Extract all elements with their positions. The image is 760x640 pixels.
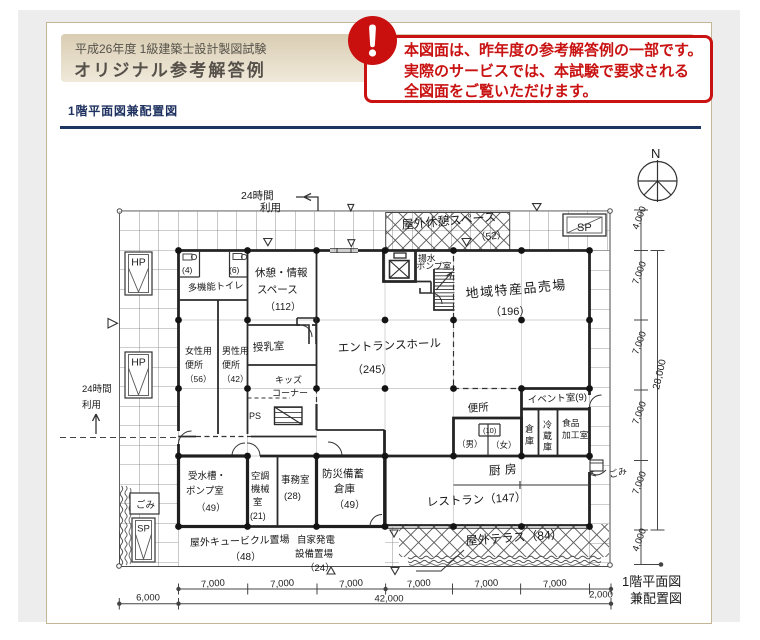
svg-text:庫: 庫 [525, 435, 534, 446]
svg-text:キッズ: キッズ [275, 374, 302, 385]
svg-text:（112）: （112） [265, 301, 301, 313]
svg-text:（女）: （女） [491, 440, 517, 450]
svg-text:空調: 空調 [251, 470, 270, 481]
svg-text:食品: 食品 [562, 417, 580, 428]
svg-text:(4): (4) [182, 265, 193, 275]
svg-text:7,000: 7,000 [630, 260, 648, 286]
svg-text:（42）: （42） [222, 374, 248, 384]
svg-text:2,000: 2,000 [589, 590, 613, 601]
svg-text:（56）: （56） [185, 374, 211, 384]
svg-text:6,000: 6,000 [136, 593, 160, 604]
svg-text:N: N [651, 146, 660, 161]
svg-text:ポンプ室: ポンプ室 [186, 485, 224, 497]
svg-text:休憩・情報: 休憩・情報 [255, 266, 308, 279]
svg-text:女性用: 女性用 [185, 345, 212, 356]
svg-text:厨房: 厨房 [488, 461, 521, 478]
svg-text:(6): (6) [229, 265, 240, 275]
svg-text:7,000: 7,000 [474, 578, 498, 591]
svg-text:（196）: （196） [490, 305, 530, 318]
svg-text:4,000: 4,000 [630, 527, 648, 553]
svg-text:便所: 便所 [185, 359, 203, 370]
svg-text:(21): (21) [250, 511, 266, 521]
svg-text:加工室: 加工室 [562, 429, 589, 440]
svg-text:7,000: 7,000 [630, 400, 648, 426]
svg-text:地域特産品売場: 地域特産品売場 [465, 277, 567, 301]
svg-text:7,000: 7,000 [630, 470, 648, 496]
svg-text:HP: HP [131, 257, 146, 269]
svg-text:授乳室: 授乳室 [252, 339, 284, 354]
svg-text:ごみ: ごみ [608, 465, 628, 480]
svg-text:倉: 倉 [525, 423, 534, 434]
svg-text:受水槽・: 受水槽・ [188, 470, 226, 482]
svg-text:室: 室 [253, 496, 262, 507]
svg-text:7,000: 7,000 [270, 578, 294, 591]
svg-text:（49）: （49） [196, 502, 226, 514]
svg-text:ポンプ室: ポンプ室 [417, 260, 452, 271]
svg-text:7,000: 7,000 [407, 578, 431, 591]
svg-text:SP: SP [137, 524, 150, 535]
svg-text:便所: 便所 [222, 359, 240, 370]
svg-text:エントランスホール: エントランスホール [337, 337, 441, 355]
svg-text:（男）: （男） [457, 439, 483, 449]
svg-text:倉庫: 倉庫 [334, 482, 355, 495]
svg-text:便所: 便所 [467, 401, 489, 415]
svg-text:防災備蓄: 防災備蓄 [322, 467, 364, 480]
svg-text:イベント室(9): イベント室(9) [528, 391, 588, 406]
svg-text:事務室: 事務室 [281, 474, 310, 486]
svg-text:（49）: （49） [334, 499, 365, 511]
svg-text:多機能トイレ: 多機能トイレ [188, 279, 244, 293]
svg-text:（24）: （24） [305, 562, 335, 574]
svg-text:7,000: 7,000 [630, 330, 648, 356]
svg-text:自家発電: 自家発電 [297, 534, 336, 546]
svg-text:庫: 庫 [543, 441, 552, 452]
svg-text:（245）: （245） [352, 363, 392, 376]
svg-text:24時間: 24時間 [82, 384, 112, 395]
svg-text:7,000: 7,000 [543, 578, 567, 591]
svg-text:(10): (10) [483, 426, 497, 435]
svg-text:28,000: 28,000 [651, 358, 669, 391]
svg-text:7,000: 7,000 [201, 578, 225, 591]
svg-text:機械: 機械 [251, 483, 270, 494]
svg-text:レストラン（147）: レストラン（147） [426, 491, 526, 509]
svg-text:冷: 冷 [543, 419, 552, 430]
svg-text:兼配置図: 兼配置図 [630, 591, 682, 606]
svg-text:利用: 利用 [82, 399, 101, 411]
svg-text:7,000: 7,000 [339, 578, 363, 591]
svg-text:設備置場: 設備置場 [295, 548, 334, 560]
svg-text:（48）: （48） [230, 551, 261, 563]
svg-text:PS: PS [249, 411, 261, 421]
svg-text:蔵: 蔵 [543, 430, 552, 441]
svg-text:HP: HP [131, 357, 146, 369]
svg-text:42,000: 42,000 [374, 594, 403, 605]
svg-text:コーナー: コーナー [272, 388, 308, 398]
svg-text:1階平面図: 1階平面図 [622, 574, 681, 589]
svg-text:スペース: スペース [257, 284, 298, 296]
svg-text:男性用: 男性用 [222, 345, 249, 356]
svg-text:SP: SP [577, 222, 592, 234]
svg-text:24時間: 24時間 [241, 190, 274, 202]
svg-text:屋外キュービクル置場: 屋外キュービクル置場 [190, 533, 290, 549]
svg-text:(28): (28) [284, 491, 301, 502]
svg-text:4,000: 4,000 [630, 205, 648, 231]
svg-text:ごみ: ごみ [136, 499, 155, 511]
svg-text:利用: 利用 [260, 202, 281, 214]
